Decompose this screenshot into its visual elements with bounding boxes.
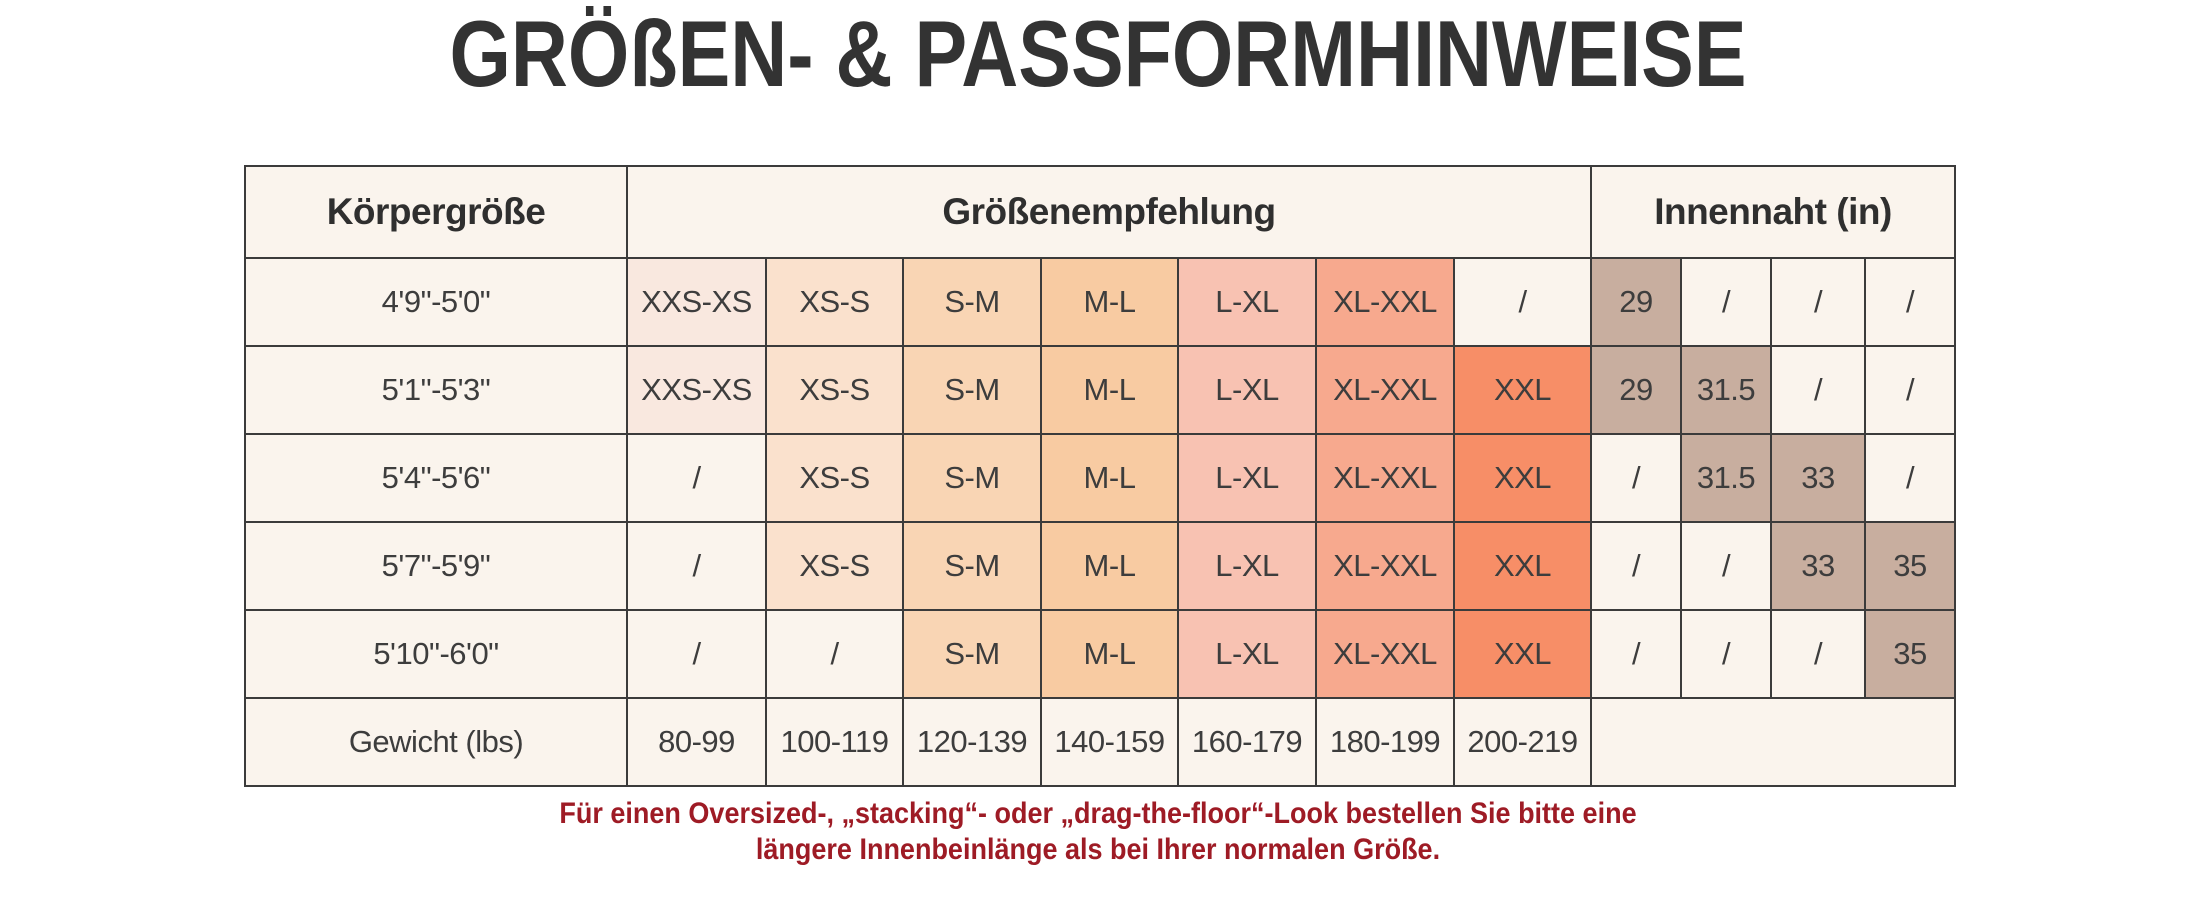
size-cell: / (766, 610, 903, 698)
column-header-innennaht: Innennaht (in) (1591, 166, 1955, 258)
inseam-cell: 35 (1865, 522, 1955, 610)
size-cell: S-M (903, 610, 1041, 698)
table-row: 5'10"-6'0"//S-MM-LL-XLXL-XXLXXL///35 (245, 610, 1955, 698)
weight-row: Gewicht (lbs)80-99100-119120-139140-1591… (245, 698, 1955, 786)
page-title: GRÖßEN- & PASSFORMHINWEISE (176, 2, 2021, 106)
table-row: 5'4"-5'6"/XS-SS-MM-LL-XLXL-XXLXXL/31.533… (245, 434, 1955, 522)
size-cell: XS-S (766, 522, 903, 610)
size-cell: M-L (1041, 434, 1178, 522)
height-cell: 4'9"-5'0" (245, 258, 627, 346)
inseam-cell: / (1591, 522, 1681, 610)
weight-cell: 120-139 (903, 698, 1041, 786)
inseam-cell: / (1865, 434, 1955, 522)
size-cell: XXL (1454, 610, 1591, 698)
inseam-cell: / (1681, 522, 1771, 610)
inseam-cell: / (1771, 258, 1865, 346)
size-cell: / (627, 610, 766, 698)
height-cell: 5'1"-5'3" (245, 346, 627, 434)
fit-note-line2: längere Innenbeinlänge als bei Ihrer nor… (110, 832, 2086, 868)
size-cell: L-XL (1178, 522, 1316, 610)
size-cell: XXL (1454, 434, 1591, 522)
size-cell: XL-XXL (1316, 610, 1454, 698)
size-cell: XS-S (766, 346, 903, 434)
size-cell: XL-XXL (1316, 258, 1454, 346)
size-chart-table: Körpergröße Größenempfehlung Innennaht (… (244, 165, 1956, 787)
size-cell: L-XL (1178, 346, 1316, 434)
column-header-groessenempfehlung: Größenempfehlung (627, 166, 1591, 258)
height-cell: 5'10"-6'0" (245, 610, 627, 698)
height-cell: 5'7"-5'9" (245, 522, 627, 610)
page: GRÖßEN- & PASSFORMHINWEISE Körpergröße G… (0, 0, 2196, 900)
weight-cell: 180-199 (1316, 698, 1454, 786)
size-cell: M-L (1041, 258, 1178, 346)
header-row: Körpergröße Größenempfehlung Innennaht (… (245, 166, 1955, 258)
table-row: 5'1"-5'3"XXS-XSXS-SS-MM-LL-XLXL-XXLXXL29… (245, 346, 1955, 434)
weight-cell: 200-219 (1454, 698, 1591, 786)
inseam-cell: 33 (1771, 522, 1865, 610)
size-cell: XL-XXL (1316, 346, 1454, 434)
weight-cell: 80-99 (627, 698, 766, 786)
size-cell: / (627, 522, 766, 610)
size-cell: / (627, 434, 766, 522)
size-cell: M-L (1041, 346, 1178, 434)
table-row: 5'7"-5'9"/XS-SS-MM-LL-XLXL-XXLXXL//3335 (245, 522, 1955, 610)
size-cell: XXL (1454, 346, 1591, 434)
inseam-cell: / (1865, 258, 1955, 346)
inseam-cell: 29 (1591, 258, 1681, 346)
size-cell: L-XL (1178, 610, 1316, 698)
fit-note-line1: Für einen Oversized-, „stacking“- oder „… (110, 796, 2086, 832)
inseam-cell: / (1591, 434, 1681, 522)
inseam-cell: 33 (1771, 434, 1865, 522)
inseam-cell: / (1771, 346, 1865, 434)
weight-cell: 100-119 (766, 698, 903, 786)
size-cell: XL-XXL (1316, 434, 1454, 522)
inseam-cell: / (1865, 346, 1955, 434)
size-cell: M-L (1041, 522, 1178, 610)
size-cell: L-XL (1178, 434, 1316, 522)
size-cell: S-M (903, 434, 1041, 522)
weight-cell: 160-179 (1178, 698, 1316, 786)
size-cell: / (1454, 258, 1591, 346)
fit-note: Für einen Oversized-, „stacking“- oder „… (110, 796, 2086, 868)
inseam-cell: 35 (1865, 610, 1955, 698)
size-cell: L-XL (1178, 258, 1316, 346)
size-cell: XXL (1454, 522, 1591, 610)
size-cell: XS-S (766, 258, 903, 346)
weight-cell: 140-159 (1041, 698, 1178, 786)
size-cell: S-M (903, 522, 1041, 610)
table-row: 4'9"-5'0"XXS-XSXS-SS-MM-LL-XLXL-XXL/29//… (245, 258, 1955, 346)
size-cell: XXS-XS (627, 258, 766, 346)
size-cell: XL-XXL (1316, 522, 1454, 610)
column-header-koerpergroesse: Körpergröße (245, 166, 627, 258)
size-cell: M-L (1041, 610, 1178, 698)
weight-row-empty-cell (1591, 698, 1955, 786)
height-cell: 5'4"-5'6" (245, 434, 627, 522)
inseam-cell: 31.5 (1681, 346, 1771, 434)
inseam-cell: 29 (1591, 346, 1681, 434)
inseam-cell: 31.5 (1681, 434, 1771, 522)
size-cell: XXS-XS (627, 346, 766, 434)
inseam-cell: / (1591, 610, 1681, 698)
inseam-cell: / (1681, 258, 1771, 346)
size-cell: XS-S (766, 434, 903, 522)
weight-label-cell: Gewicht (lbs) (245, 698, 627, 786)
inseam-cell: / (1681, 610, 1771, 698)
size-cell: S-M (903, 258, 1041, 346)
size-cell: S-M (903, 346, 1041, 434)
inseam-cell: / (1771, 610, 1865, 698)
